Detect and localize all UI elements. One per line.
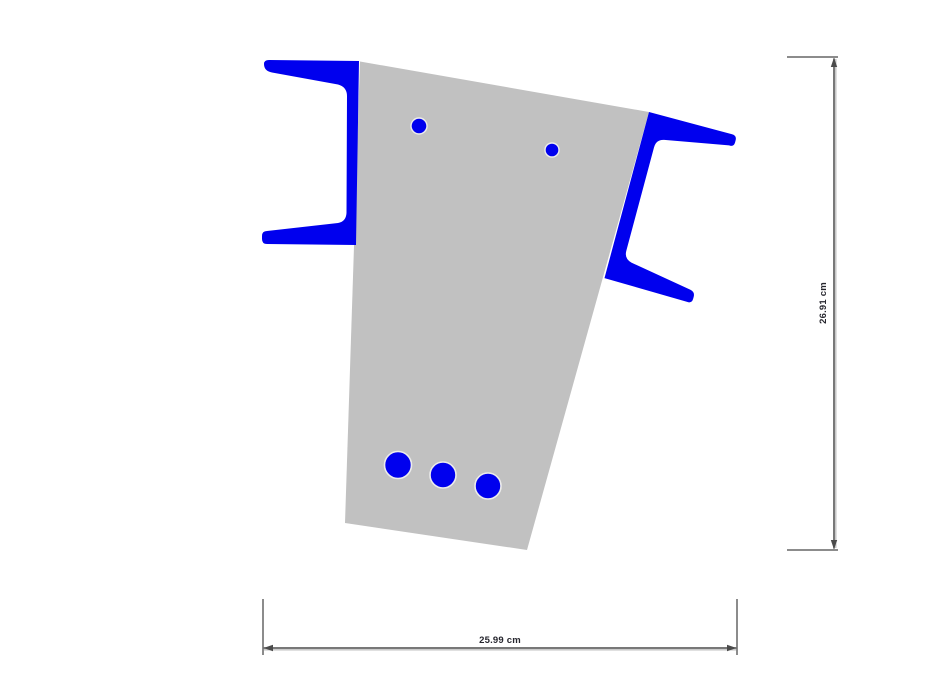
width-dimension-label: 25.99 cm bbox=[479, 635, 521, 646]
tendon-hole-bottom-2[interactable] bbox=[430, 462, 456, 488]
rebar-hole-top-1[interactable] bbox=[411, 118, 427, 134]
tendon-hole-bottom-1[interactable] bbox=[385, 452, 412, 479]
width-dimension: 25.99 cm bbox=[263, 599, 737, 655]
rebar-hole-top-2[interactable] bbox=[545, 143, 559, 157]
tendon-hole-bottom-3[interactable] bbox=[475, 473, 501, 499]
section-viewer-canvas: 26.91 cm 25.99 cm bbox=[0, 0, 926, 694]
height-dimension: 26.91 cm bbox=[787, 57, 838, 550]
steel-channel-left[interactable] bbox=[262, 60, 359, 245]
cross-section-drawing: 26.91 cm 25.99 cm bbox=[0, 0, 926, 694]
height-dimension-label: 26.91 cm bbox=[818, 282, 829, 324]
